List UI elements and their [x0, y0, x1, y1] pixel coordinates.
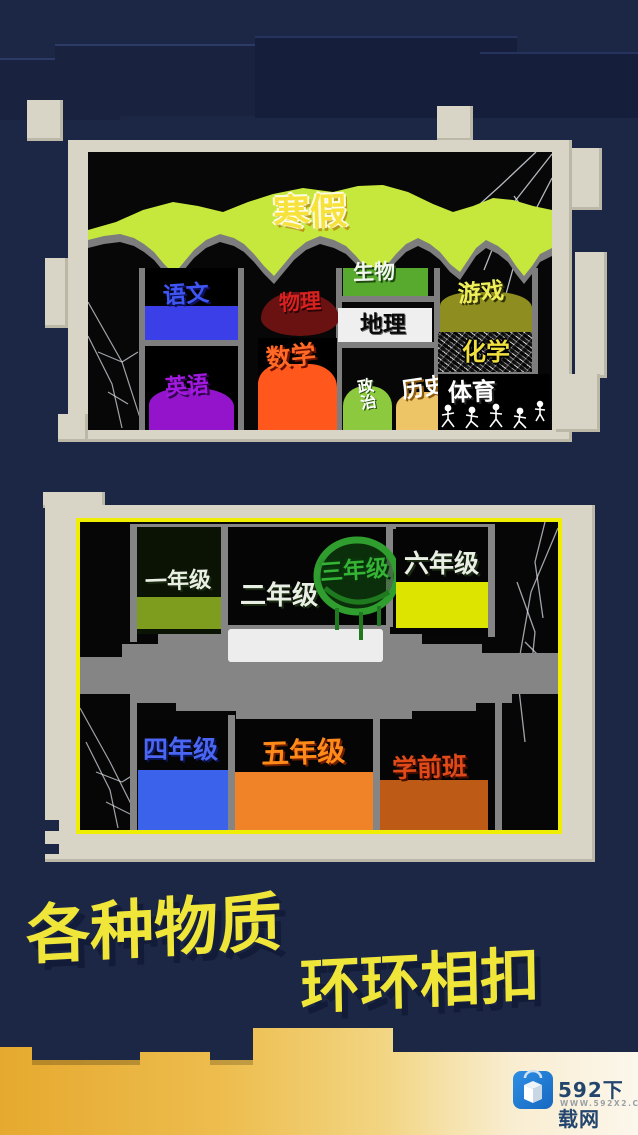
divider — [228, 715, 235, 830]
subject-cell-yingyu[interactable]: 英语 — [145, 346, 238, 430]
frame-pixel-block — [575, 252, 607, 378]
subject-cell-zhengzhi[interactable]: 政治 — [343, 372, 392, 430]
divider — [130, 692, 137, 830]
frame-pixel-block — [572, 148, 602, 210]
grade-label: 六年级 — [404, 551, 479, 576]
game-screenshot-1: 寒假 语文 英语 物理 数学 — [88, 152, 552, 430]
grade-fill — [396, 582, 488, 628]
frame-notch — [45, 844, 59, 854]
subject-cell-shuxue[interactable]: 数学 — [258, 338, 337, 430]
subject-label: 化学 — [462, 340, 510, 364]
grade-cell-4[interactable]: 四年级 — [137, 719, 228, 830]
subject-cell-dili[interactable]: 地理 — [338, 308, 432, 342]
subject-fill — [258, 364, 337, 430]
grade-cell-preschool[interactable]: 学前班 — [380, 719, 495, 830]
subject-cell-youxi[interactable]: 游戏 — [440, 270, 532, 332]
grade-label: 五年级 — [261, 738, 346, 769]
cube-app-icon — [512, 1068, 554, 1110]
subject-fill — [145, 306, 238, 340]
subject-label: 数学 — [265, 341, 317, 371]
grade-cell-5[interactable]: 五年级 — [235, 719, 373, 830]
subject-label: 地理 — [360, 314, 406, 337]
panel1-title: 寒假 — [272, 193, 347, 233]
subject-label: 英语 — [164, 374, 210, 400]
grade-label: 三年级 — [319, 558, 389, 586]
divider — [373, 716, 380, 830]
divider — [238, 268, 244, 430]
divider — [336, 296, 440, 302]
grade-fill — [137, 597, 221, 629]
subject-label: 游戏 — [457, 280, 505, 307]
divider — [488, 527, 495, 637]
grade-label: 四年级 — [143, 737, 218, 762]
skyline-silhouette — [480, 52, 638, 118]
grade-fill — [235, 772, 373, 830]
divider — [495, 696, 502, 830]
frame-pixel-block — [556, 374, 600, 432]
subject-cell-shengwu[interactable]: 生物 — [343, 268, 428, 296]
divider — [336, 342, 440, 348]
frame-pixel-block — [27, 100, 63, 141]
subject-cell-tiyu[interactable]: 体育 — [438, 374, 550, 430]
divider — [532, 268, 538, 372]
subject-label: 语文 — [162, 282, 209, 308]
grade-label: 学前班 — [392, 754, 468, 782]
grade-fill — [380, 780, 488, 830]
stick-figures-icon — [438, 400, 550, 430]
promo-page: 寒假 语文 英语 物理 数学 — [0, 0, 638, 1135]
subject-cell-yuwen[interactable]: 语文 — [145, 268, 238, 340]
grade-cell-6[interactable]: 六年级 — [396, 527, 488, 634]
headline-line1: 各种物质 — [26, 891, 283, 968]
frame-notch — [45, 820, 59, 831]
subject-cell-wuli[interactable]: 物理 — [261, 286, 339, 338]
frame-pixel-block — [45, 258, 68, 328]
subject-label: 生物 — [353, 261, 396, 283]
subject-label: 物理 — [278, 291, 321, 314]
grade-cell-1[interactable]: 一年级 — [137, 527, 221, 634]
brand-url: WWW.592X2.COM — [560, 1099, 638, 1108]
divider — [130, 527, 137, 642]
grade-fill — [138, 770, 228, 830]
skyline-silhouette — [55, 44, 285, 116]
grade-label: 一年级 — [145, 570, 212, 594]
divider — [221, 527, 228, 634]
frame-pixel-block — [58, 414, 88, 442]
subject-cell-huaxue[interactable]: 化学 — [438, 332, 532, 372]
headline-line2: 环环相扣 — [300, 946, 541, 1019]
subject-label: 政治 — [354, 377, 375, 411]
skyline-silhouette — [255, 36, 517, 118]
game-screenshot-2: 一年级 二年级 三年级 六年级 四年级 五年级 — [76, 518, 562, 834]
frame-pixel-block — [437, 106, 473, 141]
